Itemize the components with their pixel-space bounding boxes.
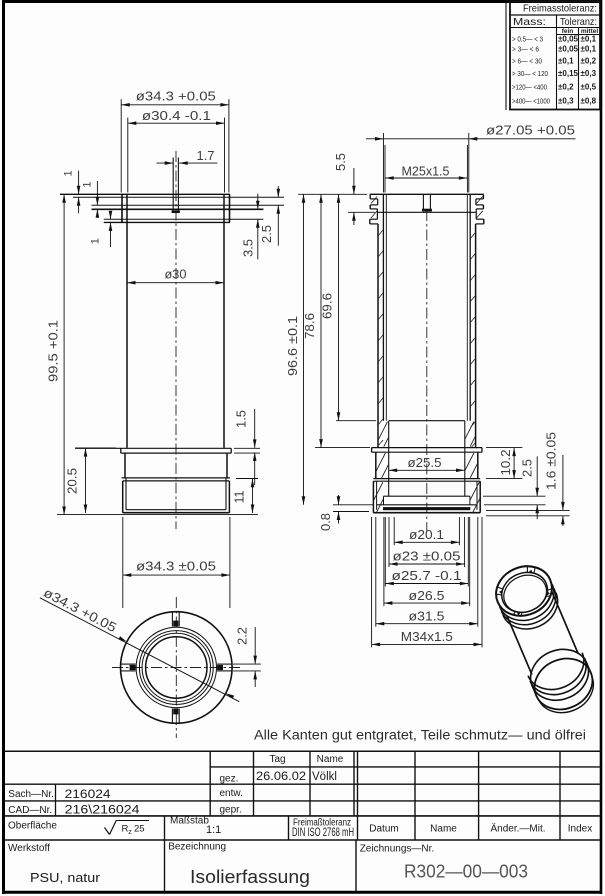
svg-text:> 0.5— < 3: > 0.5— < 3 [512, 35, 543, 44]
svg-text:0.8: 0.8 [318, 513, 333, 531]
svg-text:±0,3: ±0,3 [558, 97, 574, 106]
svg-text:z: z [128, 829, 132, 836]
svg-text:2.5: 2.5 [520, 459, 535, 477]
svg-text:ø30: ø30 [165, 266, 187, 281]
svg-text:78.6: 78.6 [302, 313, 317, 339]
svg-text:±0,05: ±0,05 [558, 35, 579, 44]
svg-text:>400— <1000: >400— <1000 [512, 97, 550, 106]
svg-text:Freimasstoleranz:: Freimasstoleranz: [523, 3, 597, 15]
svg-text:Bezeichnung: Bezeichnung [168, 842, 226, 853]
svg-text:CAD—Nr.: CAD—Nr. [8, 805, 52, 816]
svg-text:1.5: 1.5 [234, 410, 249, 428]
svg-text:1: 1 [89, 238, 101, 244]
svg-text:Name: Name [317, 754, 344, 765]
svg-text:entw.: entw. [220, 788, 243, 799]
svg-text:M25x1.5: M25x1.5 [402, 163, 450, 178]
svg-text:ø25.7 -0.1: ø25.7 -0.1 [392, 568, 462, 583]
svg-text:2.2: 2.2 [234, 627, 249, 645]
svg-text:±0,2: ±0,2 [558, 83, 574, 92]
svg-text:±0,05: ±0,05 [558, 45, 579, 54]
svg-text:> 3— < 6: > 3— < 6 [512, 45, 539, 54]
svg-text:ø31.5: ø31.5 [409, 609, 445, 624]
svg-text:gepr.: gepr. [220, 805, 242, 816]
svg-text:26.06.02: 26.06.02 [256, 771, 306, 783]
svg-text:Isolierfassung: Isolierfassung [190, 866, 310, 887]
svg-text:1.6 ±0.05: 1.6 ±0.05 [544, 432, 559, 490]
svg-text:Maßstab: Maßstab [170, 816, 209, 827]
svg-text:ø26.5: ø26.5 [409, 588, 445, 603]
svg-text:PSU, natur: PSU, natur [30, 871, 100, 885]
svg-text:R302—00—003: R302—00—003 [404, 861, 528, 882]
svg-text:Sach—Nr.: Sach—Nr. [8, 789, 54, 800]
svg-text:±0,1: ±0,1 [558, 57, 574, 66]
svg-text:Zeichnungs—Nr.: Zeichnungs—Nr. [360, 844, 434, 855]
svg-text:DIN ISO 2768 mH: DIN ISO 2768 mH [292, 825, 354, 839]
svg-text:Tag: Tag [269, 754, 285, 765]
svg-text:99.5 +0.1: 99.5 +0.1 [46, 320, 61, 382]
svg-text:M34x1.5: M34x1.5 [401, 629, 453, 644]
svg-text:> 30— < 120: > 30— < 120 [512, 69, 548, 78]
svg-text:Alle Kanten gut entgratet, Tei: Alle Kanten gut entgratet, Teile schmutz… [254, 728, 586, 743]
svg-text:11: 11 [232, 491, 247, 504]
svg-text:> 6— < 30: > 6— < 30 [512, 57, 542, 66]
svg-text:25: 25 [134, 824, 145, 835]
svg-text:>120— <400: >120— <400 [512, 83, 547, 92]
svg-text:1:1: 1:1 [206, 824, 221, 836]
svg-text:216024: 216024 [65, 789, 112, 801]
svg-text:±0,5: ±0,5 [581, 83, 597, 92]
svg-text:5.5: 5.5 [333, 153, 348, 171]
svg-text:216\216024: 216\216024 [65, 805, 141, 817]
svg-text:1: 1 [81, 182, 93, 188]
svg-text:69.6: 69.6 [319, 293, 334, 319]
svg-text:1: 1 [63, 170, 75, 176]
svg-text:±0,1: ±0,1 [581, 45, 597, 54]
svg-text:Völkl: Völkl [312, 771, 337, 783]
svg-text:ø23 ±0.05: ø23 ±0.05 [393, 548, 461, 563]
svg-text:ø27.05 +0.05: ø27.05 +0.05 [486, 123, 575, 138]
svg-text:ø34.3 +0.05: ø34.3 +0.05 [136, 89, 216, 104]
svg-text:Datum: Datum [369, 824, 398, 835]
svg-text:ø20.1: ø20.1 [409, 527, 444, 542]
svg-text:Mass:: Mass: [513, 16, 546, 28]
svg-text:20.5: 20.5 [65, 468, 80, 494]
svg-text:10.2: 10.2 [498, 450, 513, 476]
svg-text:±0,2: ±0,2 [581, 57, 597, 66]
svg-text:1.7: 1.7 [197, 148, 215, 163]
svg-text:Oberfläche: Oberfläche [8, 821, 57, 832]
svg-text:gez.: gez. [220, 774, 239, 785]
svg-text:Name: Name [430, 824, 457, 835]
svg-text:96.6 ±0.1: 96.6 ±0.1 [285, 316, 300, 376]
svg-text:ø34.3 ±0.05: ø34.3 ±0.05 [136, 559, 216, 574]
svg-text:ø30.4 -0.1: ø30.4 -0.1 [142, 108, 211, 123]
svg-text:±0,8: ±0,8 [581, 97, 597, 106]
svg-text:±0,15: ±0,15 [558, 69, 579, 78]
svg-text:ø25.5: ø25.5 [408, 455, 442, 470]
svg-text:Index: Index [568, 824, 592, 835]
svg-text:2.5: 2.5 [259, 225, 274, 243]
svg-text:±0,1: ±0,1 [581, 35, 597, 44]
svg-text:Änder.—Mit.: Änder.—Mit. [490, 823, 545, 835]
svg-text:3.5: 3.5 [241, 239, 256, 257]
svg-text:±0,3: ±0,3 [581, 69, 597, 78]
svg-text:Toleranz:: Toleranz: [560, 16, 597, 28]
svg-text:Werkstoff: Werkstoff [8, 843, 50, 854]
